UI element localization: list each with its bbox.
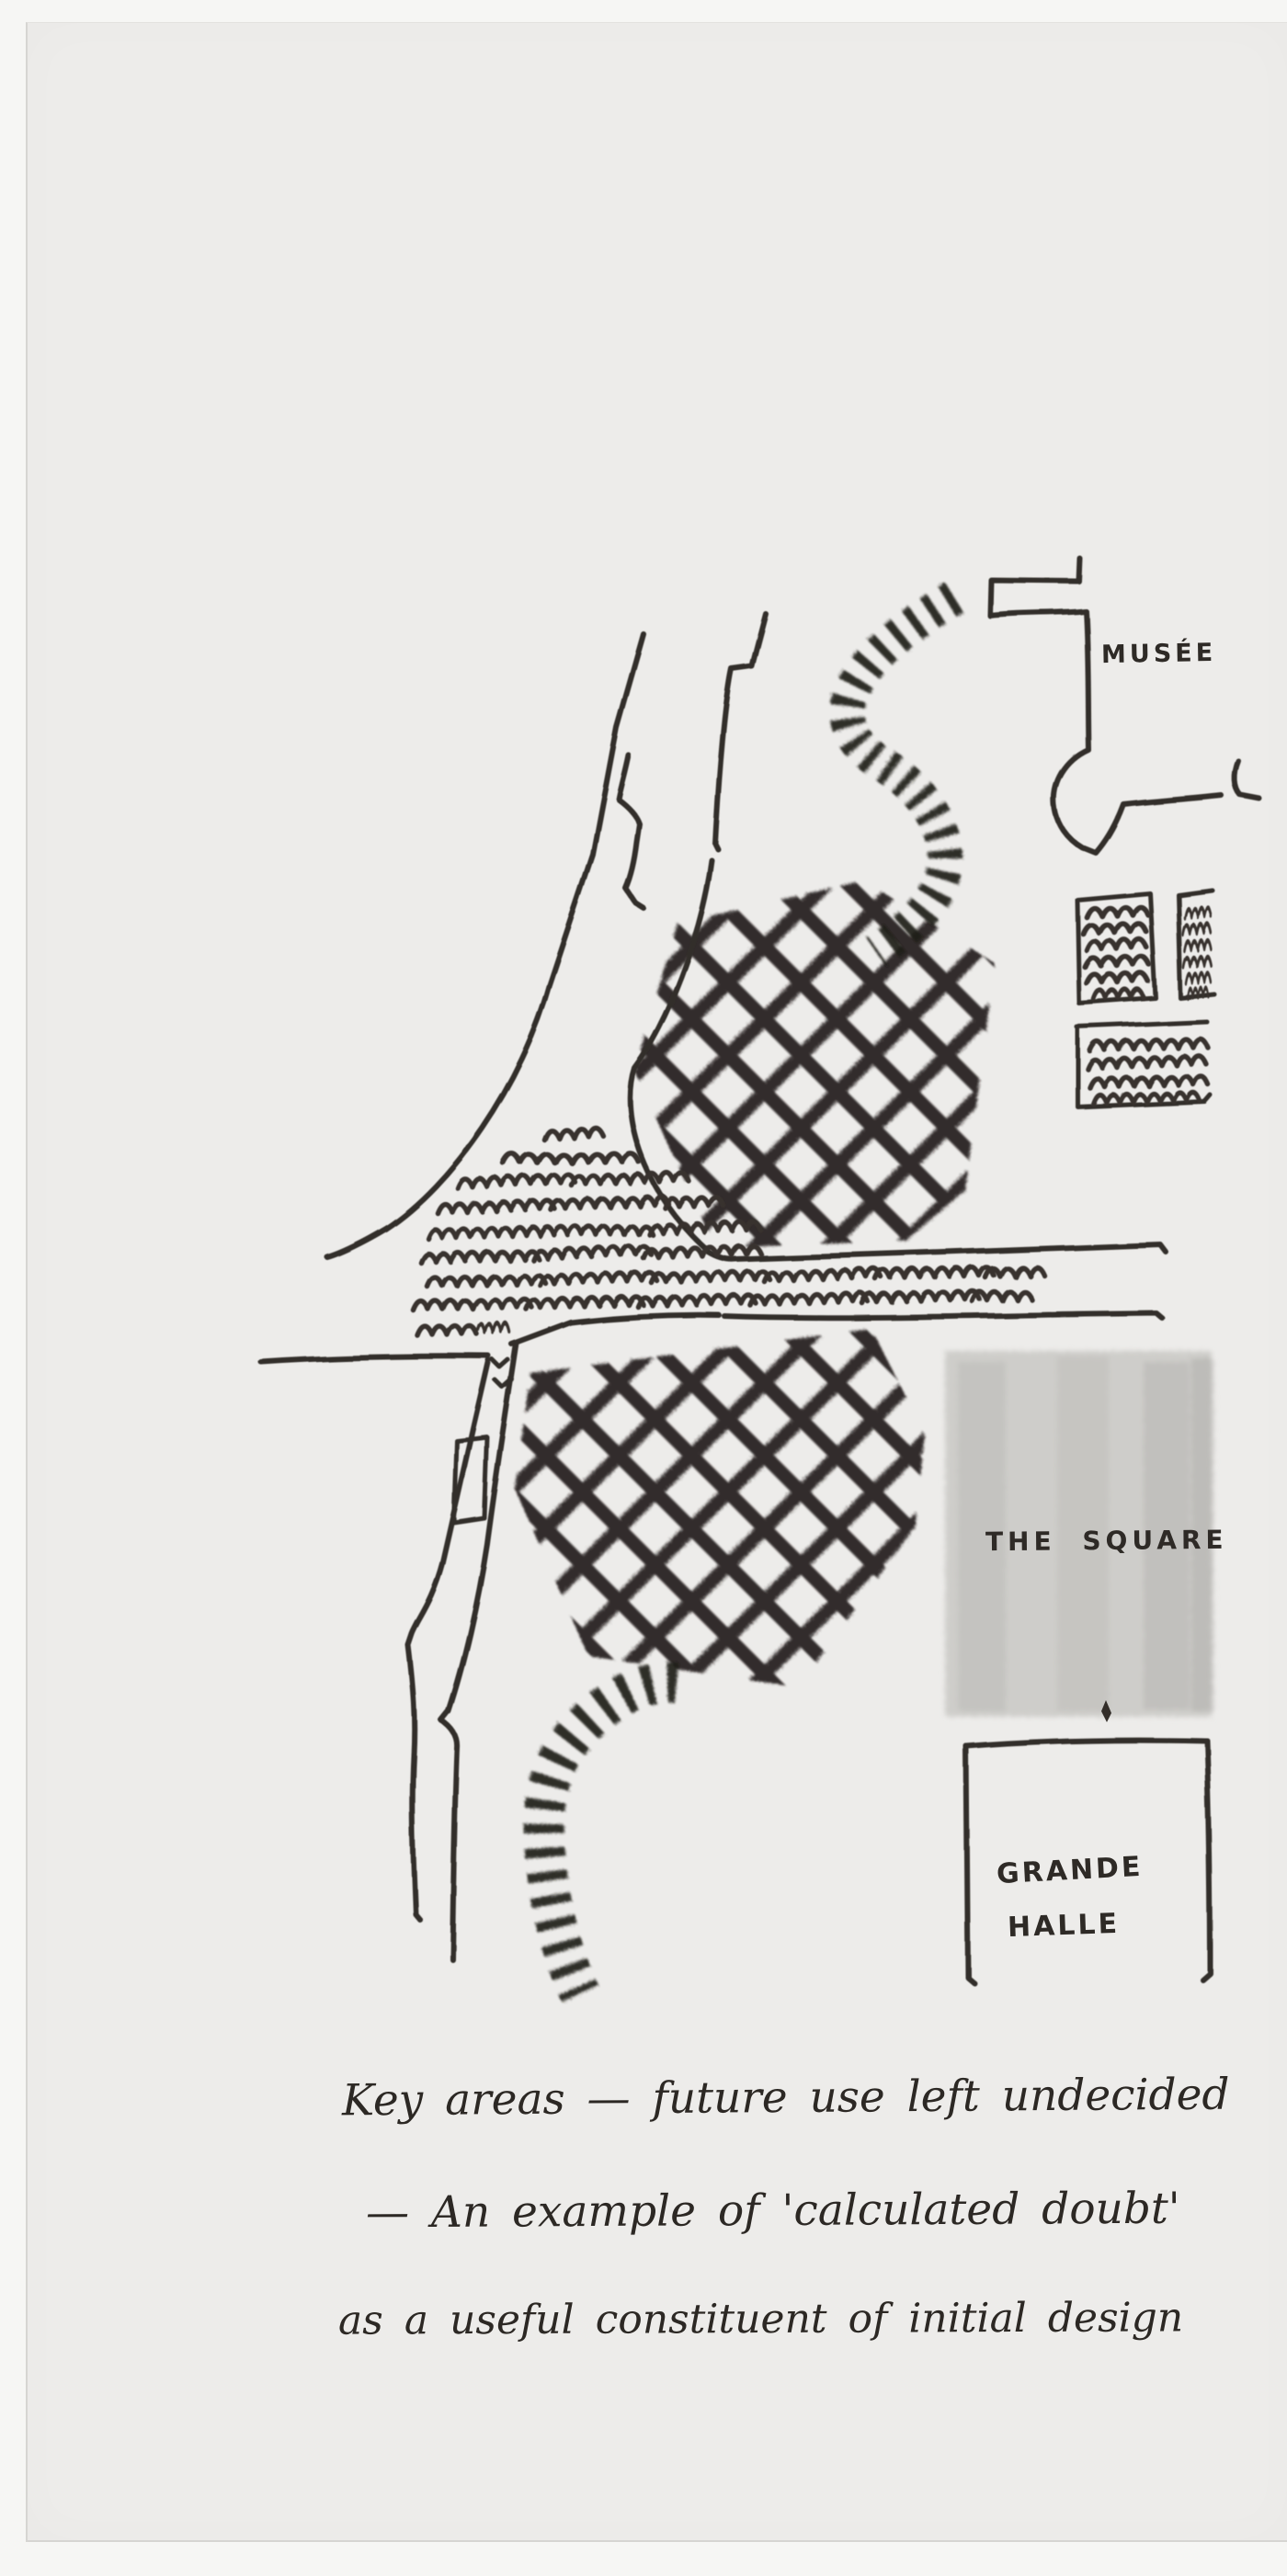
musee-outline bbox=[990, 558, 1259, 854]
upper-crosshatch bbox=[634, 880, 995, 1248]
note-line-1: Key areas — future use left undecided bbox=[342, 2070, 1230, 2127]
note-line-2: — An example of 'calculated doubt' bbox=[366, 2184, 1180, 2239]
planting-box-waves bbox=[1083, 907, 1211, 1105]
musee-label: MUSÉE bbox=[1101, 639, 1217, 669]
note-line-3: as a useful constituent of initial desig… bbox=[338, 2294, 1183, 2343]
grande-halle-label-line2: HALLE bbox=[1007, 1908, 1120, 1944]
lower-crosshatch bbox=[515, 1329, 925, 1687]
scanned-sketch-page: { "artwork": { "map_labels": { "musee": … bbox=[0, 0, 1287, 2576]
square-label: THE SQUARE bbox=[985, 1525, 1228, 1557]
lower-tick-arc bbox=[544, 1683, 677, 1993]
